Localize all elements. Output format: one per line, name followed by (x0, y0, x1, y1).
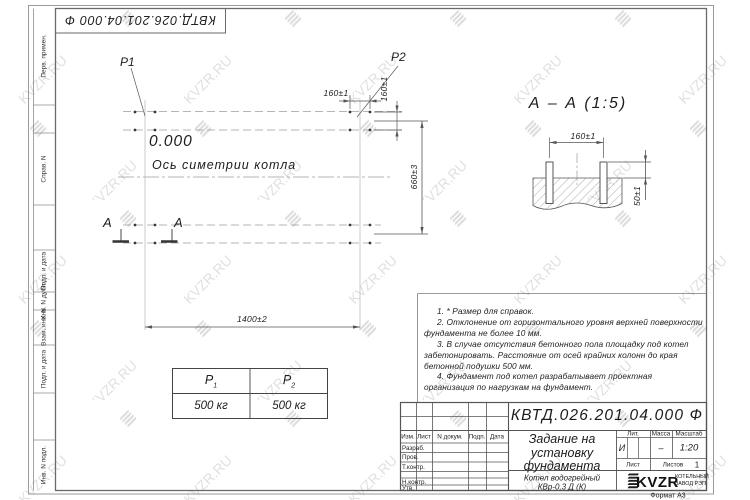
section-dim-label-50: 50±1 (632, 186, 642, 206)
dim-label-1400: 1400±2 (237, 314, 267, 324)
dim-label-660: 660±3 (409, 164, 419, 189)
section-view-title: А – А (1:5) (529, 95, 627, 113)
technical-notes: 1. * Размер для справок. 2. Отклонение о… (424, 306, 704, 393)
p2-leader-line (357, 66, 398, 117)
load-table-header-p2: Р2 (283, 373, 295, 390)
title-line-2: установку (531, 446, 593, 460)
note-2: 2. Отклонение от горизонтального уровня … (424, 317, 704, 339)
margin-label-vzam-inv: Взам. инв. N (41, 308, 48, 346)
company-name-line-1: КОТЕЛЬНЫЙ (675, 474, 709, 481)
anchor-stud-left (546, 162, 553, 204)
scale-value: 1:20 (680, 443, 699, 454)
margin-label-perv-primen: Перв. примен. (41, 34, 48, 77)
product-name-line-1: Котел водогрейный (524, 473, 600, 482)
title-block-doc-number: КВТД.026.201.04.000 Ф (511, 407, 703, 425)
note-4: 4. Фундамент под котел разрабатывает про… (424, 371, 704, 393)
dim-label-160-vertical: 160±1 (379, 76, 389, 101)
dim-label-160-horizontal: 160±1 (323, 88, 348, 98)
load-table-value-p2: 500 кг (272, 400, 305, 412)
plan-symmetry-axis-label: Ось симетрии котла (152, 158, 296, 172)
margin-label-sprav-n: Справ. N (41, 155, 48, 182)
sheet-label: Лист (626, 461, 640, 468)
top-stamp-doc-number: КВТД.026.201.04.000 Ф (57, 9, 223, 32)
row-label-utv: Утв. (402, 485, 414, 492)
scale-header: Масштаб (676, 431, 703, 438)
company-name-line-2: ЗАВОД РЭП (675, 481, 706, 488)
mass-value: – (658, 443, 663, 453)
sheets-label: Листов (663, 461, 683, 468)
mass-header: Масса (652, 431, 671, 438)
row-label-tkontr: Т.контр. (402, 464, 425, 471)
sheets-value: 1 (695, 460, 699, 469)
p1-leader-line (131, 68, 145, 116)
col-header-ndoc: N докум. (437, 433, 462, 440)
anchor-bolt-points (134, 111, 372, 245)
note-1: 1. * Размер для справок. (424, 306, 704, 317)
dim-1400 (145, 325, 360, 328)
plan-level-mark: 0.000 (149, 133, 193, 151)
format-label: Формат А3 (650, 493, 685, 500)
foundation-plan (113, 66, 429, 330)
plan-label-p1: P1 (120, 55, 135, 69)
col-header-podp: Подп. (469, 433, 486, 440)
dim-660 (374, 121, 428, 234)
row-label-razrab: Разраб. (402, 445, 425, 452)
drawing-linework (0, 0, 750, 500)
title-line-3: фундамента (524, 459, 601, 473)
col-header-data: Дата (490, 433, 504, 440)
col-header-izm: Изм. (401, 433, 415, 440)
note-3: 3. В случае отсутствия бетонного пола пл… (424, 339, 704, 372)
row-label-prov: Пров. (402, 454, 419, 461)
section-dim-label-160: 160±1 (570, 131, 595, 141)
plan-label-p2: P2 (391, 50, 406, 64)
load-table-header-p1: Р1 (205, 373, 217, 390)
margin-label-inv-podl: Инв. N подл. (41, 446, 48, 484)
lit-value: И (619, 443, 625, 453)
p2-sub: 2 (291, 382, 295, 389)
section-letter-right: А (174, 215, 183, 230)
drawing-sheet: KVZR.RU KVZR.RU (0, 0, 750, 500)
kvzr-logo-label: KVZR (636, 474, 679, 491)
section-letter-left: А (103, 215, 112, 230)
p1-sub: 1 (213, 382, 217, 389)
lit-header: Лит. (627, 431, 639, 438)
product-name-line-2: КВр-0,3 Д (К) (538, 482, 586, 491)
anchor-stud-right (600, 162, 607, 204)
title-line-1: Задание на (529, 432, 596, 446)
load-table-value-p1: 500 кг (194, 400, 227, 412)
col-header-list: Лист (417, 433, 431, 440)
margin-label-podp-data-2: Подп. и дата (41, 350, 48, 388)
